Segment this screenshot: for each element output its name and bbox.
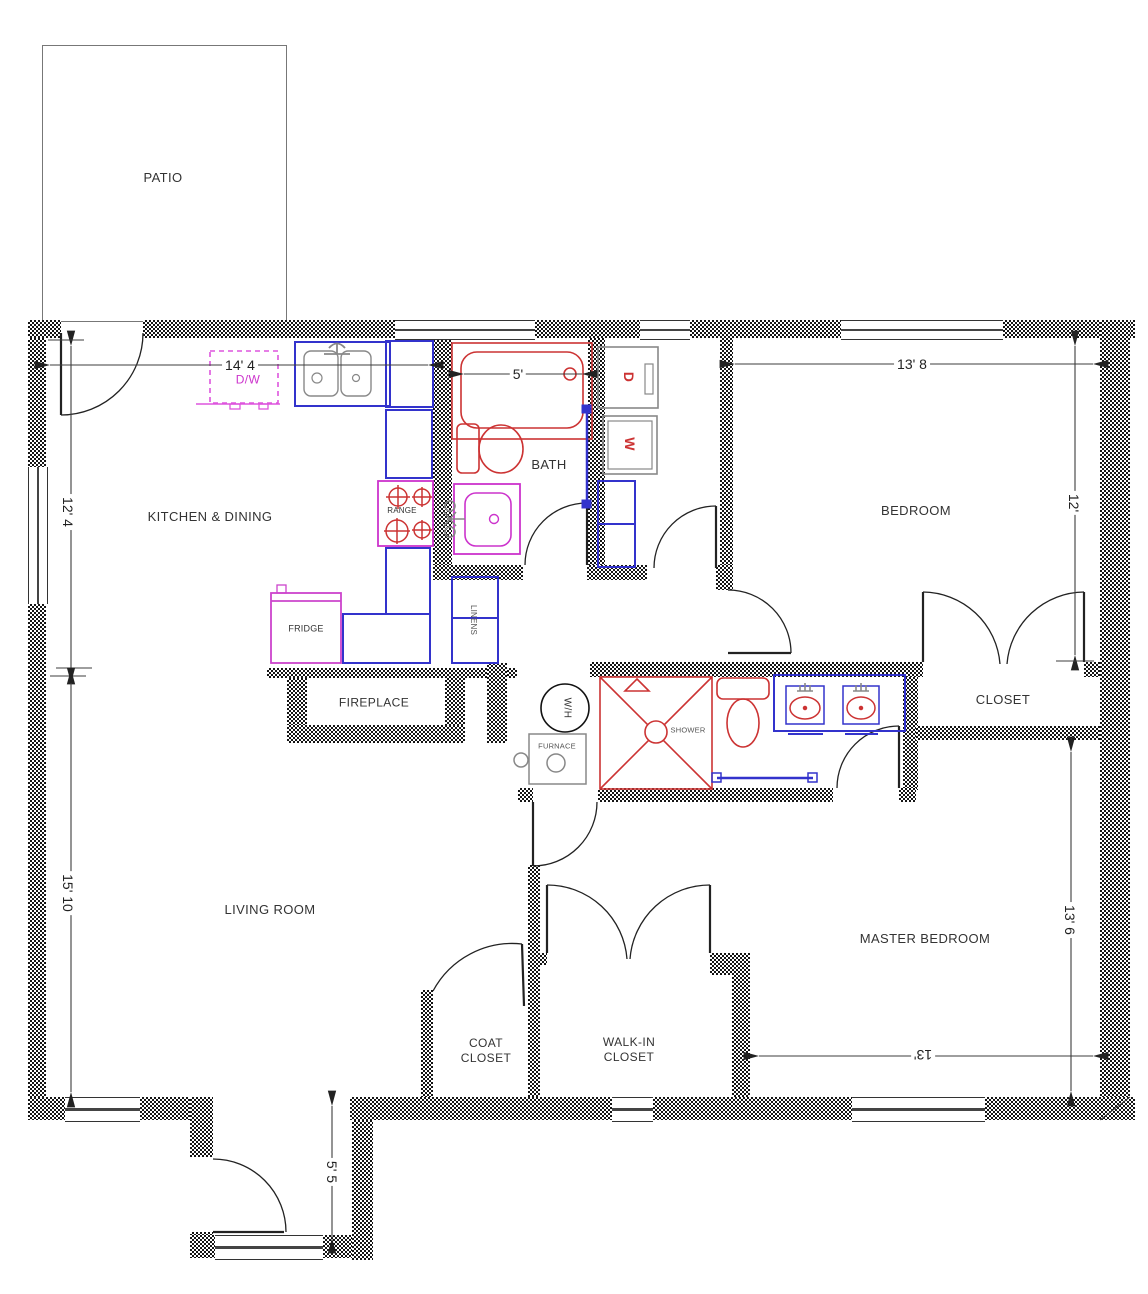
linens-label: LINENS xyxy=(468,605,478,635)
washer-label: W xyxy=(620,437,638,451)
shower-label: SHOWER xyxy=(669,725,708,734)
walk-in-closet-doors xyxy=(547,885,710,959)
dim-kitchen-depth: 12' 4 xyxy=(60,494,76,530)
floor-plan: PATIO KITCHEN & DINING BATH BEDROOM CLOS… xyxy=(0,0,1148,1294)
bath-toilet xyxy=(457,424,523,473)
room-label-patio: PATIO xyxy=(143,170,182,186)
towel-bar xyxy=(712,773,817,782)
entry-door xyxy=(213,1159,286,1232)
corner-tick xyxy=(1100,1097,1130,1120)
room-label-master-bedroom: MASTER BEDROOM xyxy=(860,931,991,947)
dim-tub-width: 5' xyxy=(510,366,526,382)
range-label: RANGE xyxy=(387,506,416,516)
hall-door xyxy=(533,802,597,866)
bedroom-door xyxy=(728,590,791,653)
patio-door xyxy=(61,333,143,415)
dim-bedroom-depth: 12' xyxy=(1066,491,1082,515)
bath-sink xyxy=(444,484,520,554)
dishwasher-label: D/W xyxy=(236,373,261,388)
furnace-label: FURNACE xyxy=(538,741,576,750)
dim-master-depth: 13' 6 xyxy=(1062,902,1078,938)
double-vanity xyxy=(774,675,905,734)
dim-bedroom-width: 13' 8 xyxy=(894,356,930,372)
room-label-bedroom: BEDROOM xyxy=(881,503,951,519)
kitchen-counters xyxy=(343,341,433,663)
dryer-label: D xyxy=(619,372,637,383)
fridge-label: FRIDGE xyxy=(288,623,323,634)
closet-double-door xyxy=(923,592,1084,664)
laundry-cabinet xyxy=(598,481,635,567)
master-bath-door xyxy=(837,726,899,788)
kitchen-sink xyxy=(295,342,390,406)
room-label-bath: BATH xyxy=(531,457,566,473)
room-label-coat-closet: COAT CLOSET xyxy=(461,1036,511,1066)
room-label-closet: CLOSET xyxy=(976,692,1030,708)
laundry-door xyxy=(654,506,716,568)
pocket-door xyxy=(582,405,591,508)
bath-door xyxy=(525,503,587,565)
dimension-lines xyxy=(48,340,1094,1238)
master-toilet xyxy=(717,678,769,747)
dim-kitchen-width: 14' 4 xyxy=(222,357,258,373)
room-label-kitchen: KITCHEN & DINING xyxy=(148,509,273,525)
coat-closet-door xyxy=(433,943,524,1006)
dim-master-width: 13' xyxy=(911,1047,935,1063)
plan-linework xyxy=(0,0,1148,1294)
fireplace-label: FIREPLACE xyxy=(339,696,409,711)
room-label-walk-in-closet: WALK-IN CLOSET xyxy=(603,1035,655,1065)
dim-living-depth: 15' 10 xyxy=(60,871,76,915)
water-heater-label: W/H xyxy=(560,698,573,719)
dim-entry-width: 5' 5 xyxy=(324,1158,340,1186)
room-label-living-room: LIVING ROOM xyxy=(224,902,315,918)
